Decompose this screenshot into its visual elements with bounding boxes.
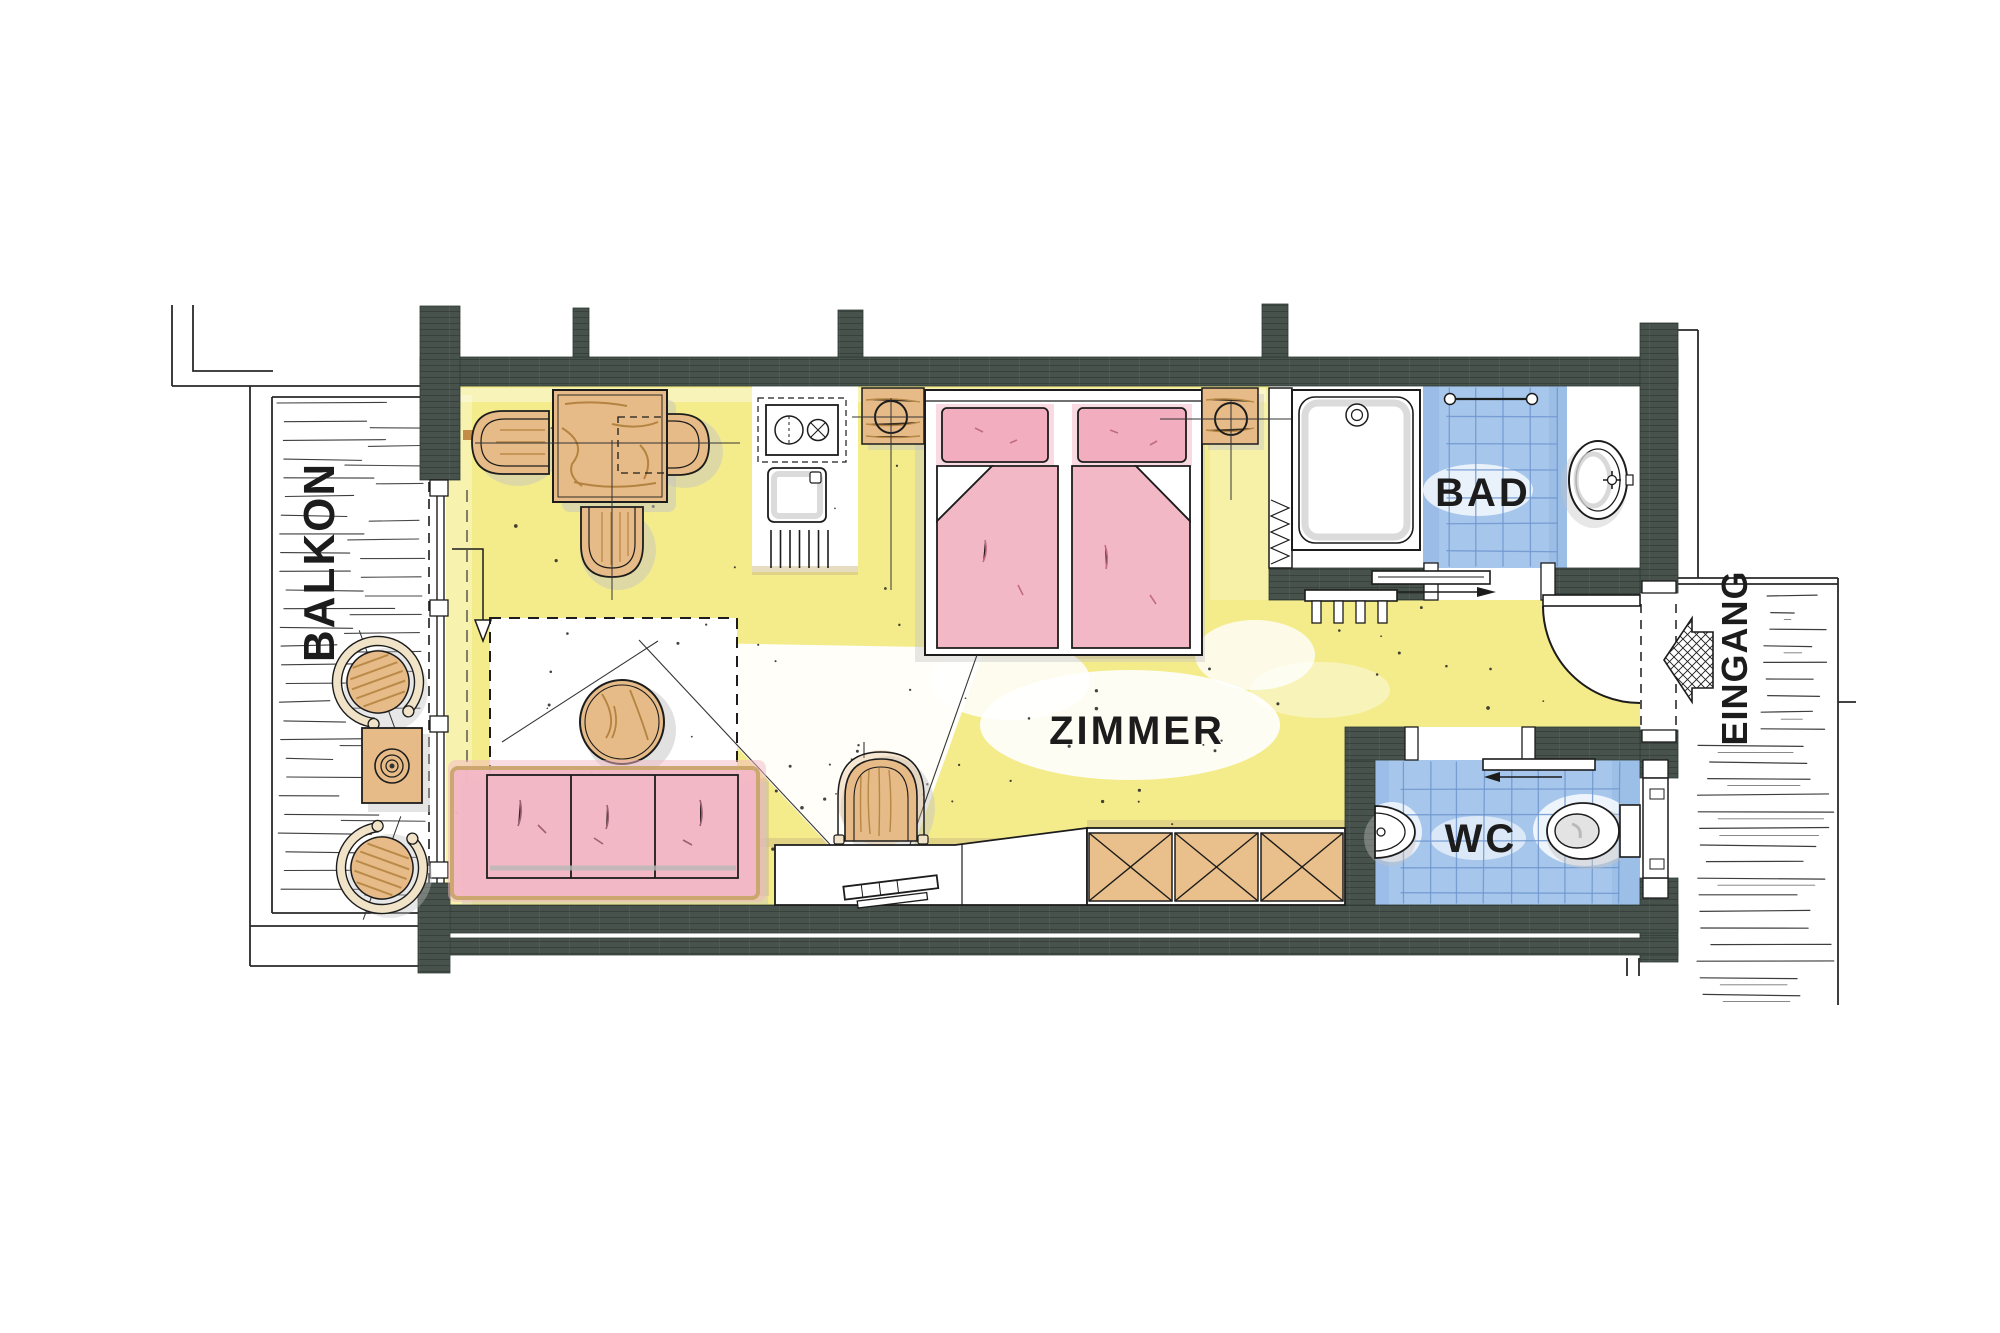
neighbor-balcony-outline xyxy=(172,305,273,386)
stove xyxy=(766,405,838,455)
light-partition xyxy=(1269,388,1292,568)
wardrobe xyxy=(1087,828,1345,905)
wall-stub-1 xyxy=(573,308,589,357)
wall-bottom-outer xyxy=(448,938,1678,955)
balcony-side-table xyxy=(362,728,422,803)
window-mullions xyxy=(430,480,448,878)
wall-wc-north-right xyxy=(1522,727,1640,760)
sofa xyxy=(448,760,766,902)
floor-plan-svg: BALKON ZIMMER BAD WC EINGANG xyxy=(0,0,2000,1333)
drain xyxy=(1346,404,1368,426)
toilet xyxy=(1547,803,1640,859)
dining-table xyxy=(553,390,667,502)
building-edge xyxy=(1678,330,1698,578)
label-wc: WC xyxy=(1445,817,1518,861)
label-bad: BAD xyxy=(1435,471,1531,515)
label-zimmer: ZIMMER xyxy=(1049,709,1225,753)
foundation-ticks xyxy=(1627,958,1639,976)
wall-top xyxy=(420,357,1678,386)
floor-plan-page: BALKON ZIMMER BAD WC EINGANG xyxy=(0,0,2000,1333)
label-balkon: BALKON xyxy=(295,462,344,662)
wall-stub-2 xyxy=(838,310,863,357)
pillow-left xyxy=(942,408,1048,462)
label-eingang: EINGANG xyxy=(1714,570,1755,745)
pillow-right xyxy=(1078,408,1186,462)
wall-right-upper xyxy=(1640,323,1678,593)
wall-corner-left xyxy=(420,306,460,480)
double-bed xyxy=(925,390,1202,655)
shower-tub xyxy=(1292,390,1420,550)
wc-swing-door xyxy=(1643,778,1668,878)
entrance-arrow xyxy=(1664,618,1713,702)
entry-door-leaf xyxy=(1543,595,1640,606)
faucet xyxy=(1608,476,1617,485)
coffee-table xyxy=(580,680,664,764)
wall-stub-3 xyxy=(1262,304,1288,357)
wall-bottom-inner xyxy=(420,905,1678,933)
armchair xyxy=(834,750,928,846)
